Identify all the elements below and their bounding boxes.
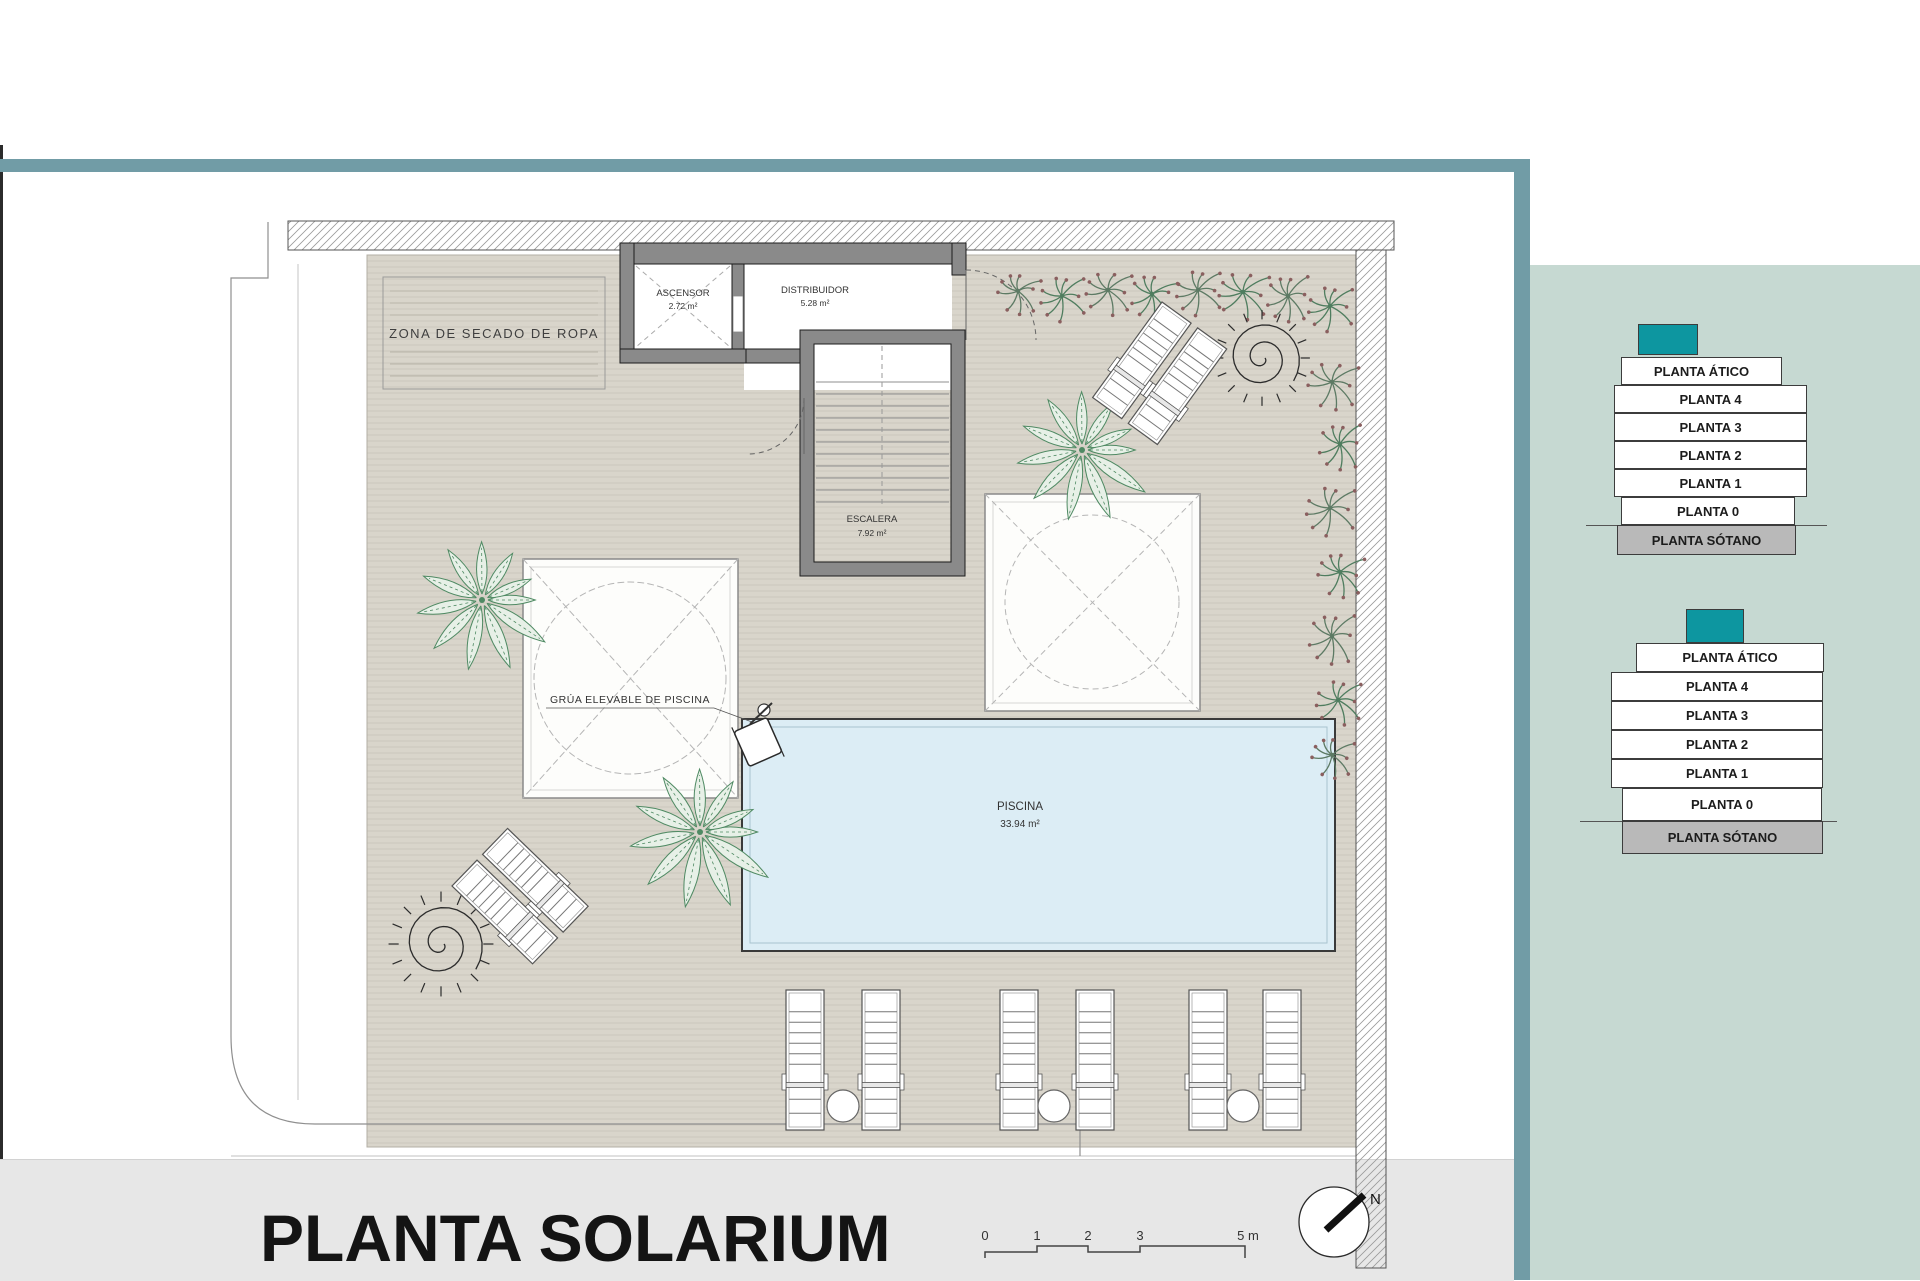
- screenshot-root: { "title": "PLANTA SOLARIUM", "plan": { …: [0, 0, 1920, 1280]
- sun-lounger: [1089, 300, 1194, 421]
- drying-zone: ZONA DE SECADO DE ROPA: [383, 277, 605, 389]
- sun-lounger: [782, 990, 828, 1130]
- elevator-label: ASCENSOR: [656, 288, 709, 299]
- level-bar-planta3: PLANTA 3: [1614, 413, 1807, 441]
- spiral-plant: [389, 892, 494, 997]
- border-plant: [1265, 274, 1310, 323]
- level-bar-sotano: PLANTA SÓTANO: [1622, 821, 1823, 854]
- level-bar-atico: PLANTA ÁTICO: [1621, 357, 1782, 385]
- pool: PISCINA 33.94 m²: [742, 719, 1335, 951]
- page-title: PLANTA SOLARIUM: [260, 1200, 891, 1276]
- sun-lounger: [1259, 990, 1305, 1130]
- level-roof-block: [1686, 609, 1744, 643]
- level-bar-planta4: PLANTA 4: [1611, 672, 1823, 701]
- pool-label: PISCINA: [997, 801, 1043, 813]
- stairs-area-label: 7.92 m²: [858, 528, 887, 538]
- palm-tree: [1017, 392, 1149, 521]
- spiral-plant: [1214, 310, 1310, 406]
- plot-boundary: [231, 222, 1080, 1156]
- sun-lounger: [480, 826, 591, 935]
- pool-crane: GRÚA ELEVABLE DE PISCINA: [546, 693, 784, 771]
- hall-label: DISTRIBUIDOR: [781, 285, 849, 296]
- sheet-left-border: [0, 145, 3, 1159]
- hatched-wall-band: [288, 221, 1394, 1268]
- sheet-right-frame-bar: [1514, 159, 1530, 1280]
- level-bar-planta2: PLANTA 2: [1611, 730, 1823, 759]
- hall-area-label: 5.28 m²: [801, 298, 830, 308]
- level-bar-atico: PLANTA ÁTICO: [1636, 643, 1824, 672]
- border-plant: [1316, 553, 1367, 599]
- solarium-deck: [231, 255, 1356, 1156]
- drying-zone-label: ZONA DE SECADO DE ROPA: [389, 326, 599, 341]
- level-bar-planta1: PLANTA 1: [1614, 469, 1807, 497]
- palm-tree: [417, 542, 549, 671]
- level-bar-planta0: PLANTA 0: [1621, 497, 1795, 525]
- level-bar-planta0: PLANTA 0: [1622, 788, 1822, 821]
- pool-crane-label: GRÚA ELEVABLE DE PISCINA: [550, 693, 710, 706]
- level-bar-planta1: PLANTA 1: [1611, 759, 1823, 788]
- skylight-right: [985, 494, 1200, 711]
- sun-lounger: [449, 857, 560, 966]
- border-plant: [1130, 275, 1180, 322]
- sun-lounger: [858, 990, 904, 1130]
- border-plant: [1307, 286, 1355, 334]
- border-plant: [1305, 486, 1358, 537]
- stairs-label: ESCALERA: [847, 514, 898, 525]
- level-bar-planta2: PLANTA 2: [1614, 441, 1807, 469]
- level-bar-planta4: PLANTA 4: [1614, 385, 1807, 413]
- sun-lounger: [1185, 990, 1231, 1130]
- border-plant: [1175, 270, 1223, 317]
- level-bar-sotano: PLANTA SÓTANO: [1617, 525, 1796, 555]
- sun-lounger: [1125, 326, 1230, 447]
- stair-core: ASCENSOR 2.72 m² DISTRIBUIDOR 5.28 m² ES…: [620, 243, 1036, 576]
- pool-area-label: 33.94 m²: [1000, 819, 1040, 830]
- border-plant: [1307, 613, 1357, 666]
- border-plant: [1314, 680, 1363, 727]
- border-plant: [1317, 423, 1362, 472]
- sun-lounger: [1072, 990, 1118, 1130]
- level-diagram-lower: PLANTA ÁTICO PLANTA 4 PLANTA 3 PLANTA 2 …: [1604, 609, 1904, 869]
- sheet-top-frame-bar: [0, 159, 1530, 172]
- side-tables: [827, 1090, 1259, 1122]
- border-plant: [1306, 362, 1361, 411]
- skylight-left: [523, 559, 738, 798]
- level-diagram-upper: PLANTA ÁTICO PLANTA 4 PLANTA 3 PLANTA 2 …: [1604, 324, 1904, 564]
- palm-tree: [629, 769, 772, 908]
- border-plant: [1217, 272, 1272, 321]
- border-plant: [1039, 276, 1087, 323]
- level-roof-block: [1638, 324, 1698, 355]
- border-plant: [1084, 272, 1134, 317]
- border-plant: [996, 274, 1043, 317]
- border-plant: [1310, 738, 1357, 780]
- sun-lounger: [996, 990, 1042, 1130]
- level-bar-planta3: PLANTA 3: [1611, 701, 1823, 730]
- elevator-area-label: 2.72 m²: [669, 301, 698, 311]
